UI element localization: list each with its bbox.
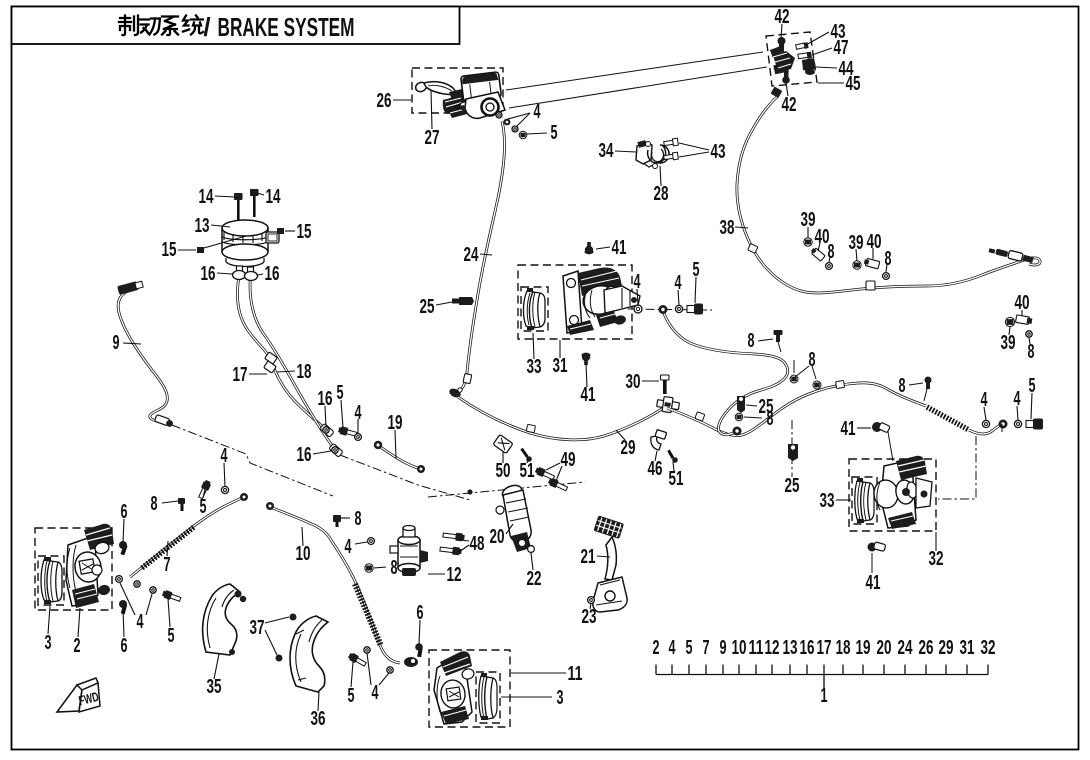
svg-text:38: 38	[720, 217, 735, 239]
svg-text:8: 8	[767, 408, 774, 430]
svg-text:45: 45	[846, 73, 861, 95]
svg-text:25: 25	[785, 475, 800, 497]
svg-text:4: 4	[345, 536, 353, 558]
svg-text:24: 24	[464, 244, 480, 266]
svg-text:4: 4	[137, 611, 145, 633]
svg-text:18: 18	[836, 637, 851, 659]
svg-text:41: 41	[612, 237, 627, 259]
svg-text:32: 32	[929, 548, 944, 570]
svg-text:30: 30	[626, 371, 641, 393]
svg-text:40: 40	[867, 231, 882, 253]
svg-text:12: 12	[447, 564, 462, 586]
svg-text:46: 46	[648, 458, 663, 480]
svg-text:14: 14	[266, 186, 282, 208]
svg-text:8: 8	[391, 557, 398, 579]
svg-text:16: 16	[297, 444, 312, 466]
svg-text:5: 5	[348, 685, 355, 707]
svg-text:/: /	[203, 12, 210, 42]
svg-text:2: 2	[74, 635, 81, 657]
svg-text:2: 2	[653, 637, 660, 659]
svg-text:51: 51	[520, 460, 535, 482]
svg-text:5: 5	[200, 496, 207, 518]
svg-text:1: 1	[821, 685, 828, 707]
svg-text:39: 39	[1001, 332, 1016, 354]
svg-text:8: 8	[828, 241, 835, 263]
svg-text:16: 16	[201, 263, 216, 285]
svg-text:20: 20	[877, 637, 892, 659]
svg-text:5: 5	[337, 382, 344, 404]
svg-text:20: 20	[490, 526, 505, 548]
svg-text:43: 43	[711, 141, 726, 163]
svg-text:21: 21	[581, 546, 596, 568]
svg-text:22: 22	[527, 568, 542, 590]
svg-text:11: 11	[749, 637, 764, 659]
svg-text:3: 3	[557, 687, 564, 709]
svg-text:3: 3	[45, 632, 52, 654]
svg-text:8: 8	[748, 330, 755, 352]
svg-text:50: 50	[496, 460, 511, 482]
svg-text:11: 11	[568, 663, 583, 685]
svg-text:5: 5	[686, 637, 693, 659]
svg-text:36: 36	[311, 708, 326, 730]
svg-text:37: 37	[250, 617, 265, 639]
svg-text:13: 13	[195, 215, 210, 237]
svg-text:8: 8	[899, 375, 906, 397]
svg-text:16: 16	[265, 263, 280, 285]
svg-text:33: 33	[820, 490, 835, 512]
svg-text:47: 47	[834, 37, 849, 59]
svg-text:15: 15	[297, 221, 312, 243]
svg-text:19: 19	[856, 637, 871, 659]
svg-text:7: 7	[703, 637, 710, 659]
svg-text:14: 14	[199, 186, 215, 208]
svg-text:23: 23	[582, 606, 597, 628]
svg-text:8: 8	[151, 493, 158, 515]
svg-text:25: 25	[420, 296, 435, 318]
svg-text:41: 41	[866, 572, 881, 594]
svg-text:8: 8	[809, 349, 816, 371]
svg-text:4: 4	[669, 637, 677, 659]
svg-text:18: 18	[297, 361, 312, 383]
svg-text:26: 26	[919, 637, 934, 659]
svg-text:32: 32	[981, 637, 996, 659]
svg-text:9: 9	[720, 637, 727, 659]
svg-text:10: 10	[296, 543, 311, 565]
svg-text:26: 26	[377, 90, 392, 112]
svg-text:5: 5	[168, 625, 175, 647]
svg-text:42: 42	[782, 94, 797, 116]
svg-text:27: 27	[425, 127, 440, 149]
svg-text:41: 41	[841, 418, 856, 440]
svg-text:49: 49	[561, 449, 576, 471]
svg-text:41: 41	[581, 384, 596, 406]
svg-text:29: 29	[939, 637, 954, 659]
svg-text:6: 6	[121, 635, 128, 657]
svg-text:16: 16	[800, 637, 815, 659]
svg-text:10: 10	[732, 637, 747, 659]
svg-text:17: 17	[817, 637, 832, 659]
svg-text:12: 12	[765, 637, 780, 659]
svg-text:24: 24	[898, 637, 914, 659]
svg-text:33: 33	[527, 356, 542, 378]
svg-text:15: 15	[162, 239, 177, 261]
svg-text:BRAKE SYSTEM: BRAKE SYSTEM	[218, 12, 355, 42]
svg-text:7: 7	[164, 554, 171, 576]
svg-text:4: 4	[534, 101, 542, 123]
svg-text:31: 31	[960, 637, 975, 659]
svg-text:48: 48	[470, 533, 485, 555]
svg-text:28: 28	[654, 183, 669, 205]
svg-text:51: 51	[669, 468, 684, 490]
svg-text:8: 8	[885, 248, 892, 270]
svg-text:8: 8	[1028, 341, 1035, 363]
svg-text:5: 5	[551, 122, 558, 144]
svg-text:17: 17	[233, 364, 248, 386]
svg-text:31: 31	[553, 355, 568, 377]
svg-text:35: 35	[207, 676, 222, 698]
svg-text:13: 13	[783, 637, 798, 659]
svg-text:4: 4	[372, 682, 380, 704]
svg-text:34: 34	[599, 140, 615, 162]
svg-text:9: 9	[113, 332, 120, 354]
svg-text:29: 29	[621, 437, 636, 459]
svg-text:8: 8	[355, 508, 362, 530]
